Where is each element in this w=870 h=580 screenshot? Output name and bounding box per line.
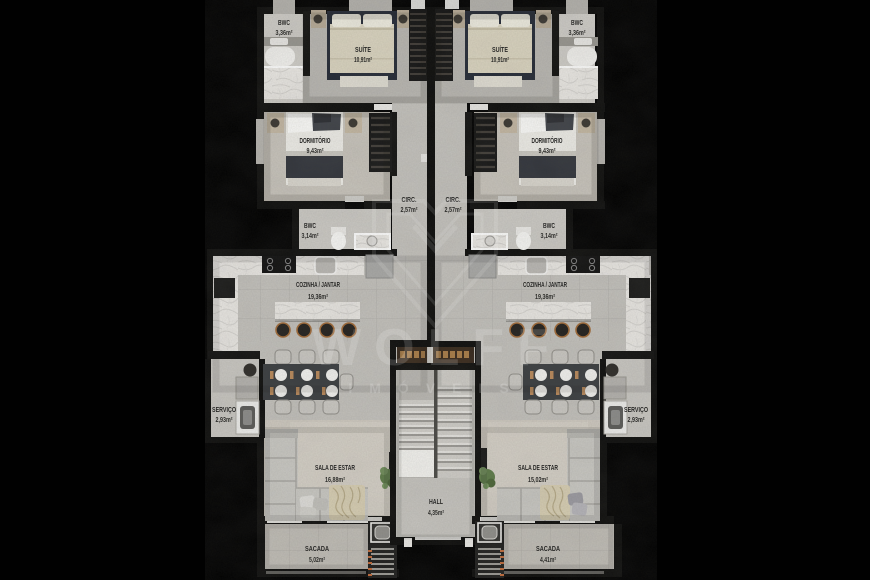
- svg-text:WOLFF: WOLFF: [312, 319, 562, 377]
- svg-text:IMÓVEIS: IMÓVEIS: [348, 379, 525, 396]
